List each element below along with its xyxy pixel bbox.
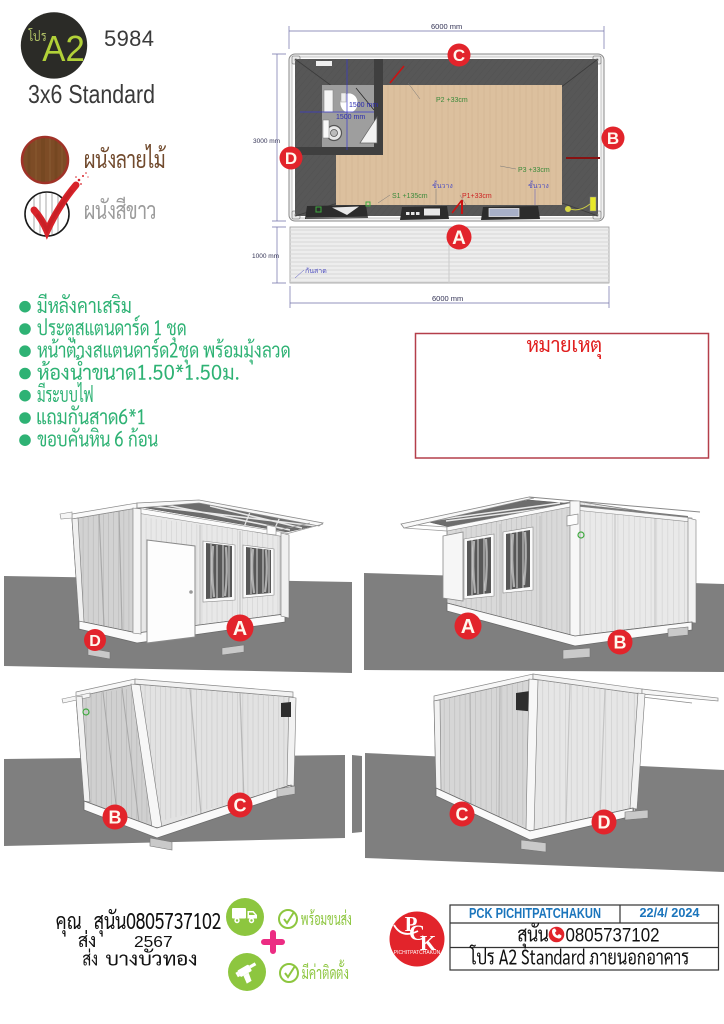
svg-text:PICHITPATCHAKUN: PICHITPATCHAKUN [394,950,441,956]
svg-text:B: B [614,632,627,652]
svg-text:D: D [89,633,101,650]
svg-text:1500 mm: 1500 mm [336,114,365,121]
svg-text:D: D [598,812,611,832]
svg-text:22/4/ 2024: 22/4/ 2024 [640,905,701,920]
svg-text:3000 mm: 3000 mm [253,138,280,145]
svg-text:B: B [607,129,619,148]
svg-text:C: C [234,795,247,815]
svg-text:6000 mm: 6000 mm [432,294,463,303]
svg-text:A: A [452,228,466,249]
svg-text:1000 mm: 1000 mm [252,253,279,260]
svg-text:P2 +33cm: P2 +33cm [436,97,468,104]
svg-text:D: D [285,149,297,168]
svg-text:กันสาด: กันสาด [305,267,327,275]
svg-text:0805737102: 0805737102 [566,926,660,947]
svg-text:6000 mm: 6000 mm [431,22,462,31]
svg-text:A: A [233,618,247,640]
svg-text:S1 +135cm: S1 +135cm [392,193,428,200]
svg-text:C: C [453,46,465,65]
svg-text:B: B [109,807,122,827]
svg-text:A2: A2 [42,28,85,69]
svg-text:P1+33cm: P1+33cm [462,193,492,200]
svg-text:3x6 Standard: 3x6 Standard [28,79,155,109]
svg-text:1500 mm: 1500 mm [349,102,378,109]
svg-text:5984: 5984 [104,26,154,51]
svg-text:P3 +33cm: P3 +33cm [518,167,550,174]
svg-text:PCK PICHITPATCHAKUN: PCK PICHITPATCHAKUN [469,906,601,922]
svg-text:C: C [456,804,469,824]
svg-text:A: A [461,616,475,638]
svg-text:2567: 2567 [134,934,173,951]
